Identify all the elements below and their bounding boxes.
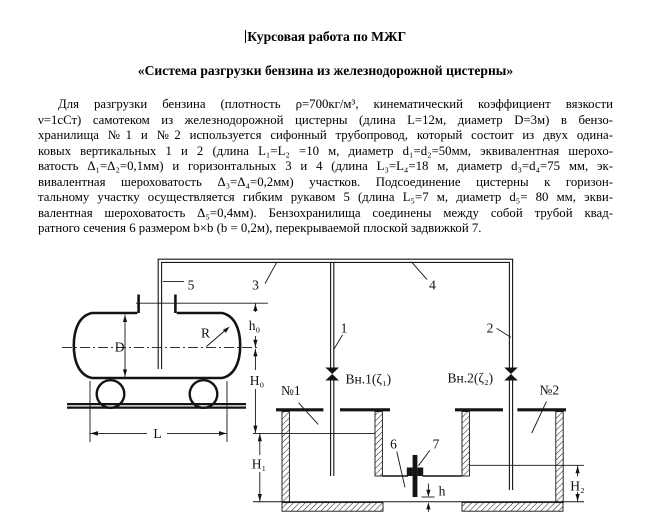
label-section-3: 3 (252, 278, 259, 293)
leader-2 (497, 328, 511, 337)
scheme-drawing: 5 3 4 1 2 Вн.1(ζ₁) Вн.2(ζ₂) №1 №2 6 7 h₀… (0, 250, 666, 523)
leader-6 (397, 452, 405, 488)
label-dim-H1: H₁ (252, 457, 266, 472)
task-paragraph: Для разгрузки бензина (плотность ρ=700кг… (38, 97, 613, 237)
label-section-4: 4 (429, 278, 436, 293)
label-hose-5: 5 (188, 278, 195, 293)
page-title: Курсовая работа по МЖГ (38, 29, 613, 45)
leader-4 (411, 262, 427, 280)
storage-tanks (276, 410, 566, 511)
leader-7 (418, 450, 429, 465)
riser-1-upper (331, 262, 334, 367)
riser-1-lower (331, 381, 334, 477)
label-dim-H2: H₂ (570, 479, 584, 494)
gate-valve (407, 455, 423, 497)
leader-1 (333, 335, 342, 350)
label-dim-L: L (153, 426, 161, 441)
paragraph-line: вивалентная шероховатость Δ₃=Δ₄=0,2мм) у… (38, 175, 613, 191)
label-dim-D: D (115, 340, 125, 355)
paragraph-line: ν=1сСт) самотеком из железнодорожной цис… (38, 113, 613, 129)
leader-tank2 (532, 402, 547, 433)
dim-H0 (253, 349, 257, 433)
paragraph-line: хранилища №1 и №2 используется сифонный … (38, 128, 613, 144)
title-text: Курсовая работа по МЖГ (247, 29, 406, 44)
gate-guide-right (417, 468, 423, 477)
paragraph-line: Для разгрузки бензина (плотность ρ=700кг… (38, 97, 613, 113)
label-dim-h0: h₀ (249, 318, 261, 333)
label-gate-7: 7 (433, 437, 440, 452)
tank1-bottom-slab (282, 503, 383, 512)
document-page: Курсовая работа по МЖГ «Система разгрузк… (0, 0, 666, 523)
paragraph-line: ватость Δ₁=Δ₂=0,1мм) и горизонтальных 3 … (38, 159, 613, 175)
label-tank-1: №1 (281, 383, 301, 398)
paragraph-line: тальному участку осуществляется гибким р… (38, 190, 613, 206)
paragraph-line: валентная шероховатость Δ₅=0,4мм). Бензо… (38, 206, 613, 222)
tank-car-body (74, 313, 240, 378)
label-valve-2: Вн.2(ζ₂) (448, 371, 494, 386)
tank-car (62, 295, 268, 408)
gate-blade (413, 455, 418, 497)
tank2-bottom-slab (462, 503, 563, 512)
page-subtitle: «Система разгрузки бензина из железнодор… (38, 63, 613, 79)
tank2-right-wall (556, 412, 563, 503)
riser-2-lower (509, 381, 512, 491)
label-riser-2: 2 (487, 321, 494, 336)
valve-2-icon (504, 368, 518, 381)
paragraph-line: ратного сечения 6 размером b×b (b = 0,2м… (38, 221, 613, 237)
label-dim-H0: H₀ (250, 373, 265, 388)
label-valve-1: Вн.1(ζ₁) (346, 372, 392, 387)
label-channel-6: 6 (390, 437, 397, 452)
valve-1-icon (325, 368, 339, 381)
tank2-left-wall (462, 412, 469, 476)
label-dim-R: R (201, 326, 210, 341)
tank1-right-wall (375, 412, 382, 476)
dim-h (422, 484, 435, 512)
tank1-left-wall (282, 412, 289, 503)
leader-3 (265, 262, 277, 284)
paragraph-line: ковых вертикальных 1 и 2 (длина L₁=L₂ =1… (38, 144, 613, 160)
gate-guide-left (407, 468, 413, 477)
label-riser-1: 1 (341, 321, 348, 336)
leader-tank1 (299, 403, 319, 425)
label-dim-h: h (439, 484, 446, 499)
label-tank-2: №2 (540, 383, 560, 398)
